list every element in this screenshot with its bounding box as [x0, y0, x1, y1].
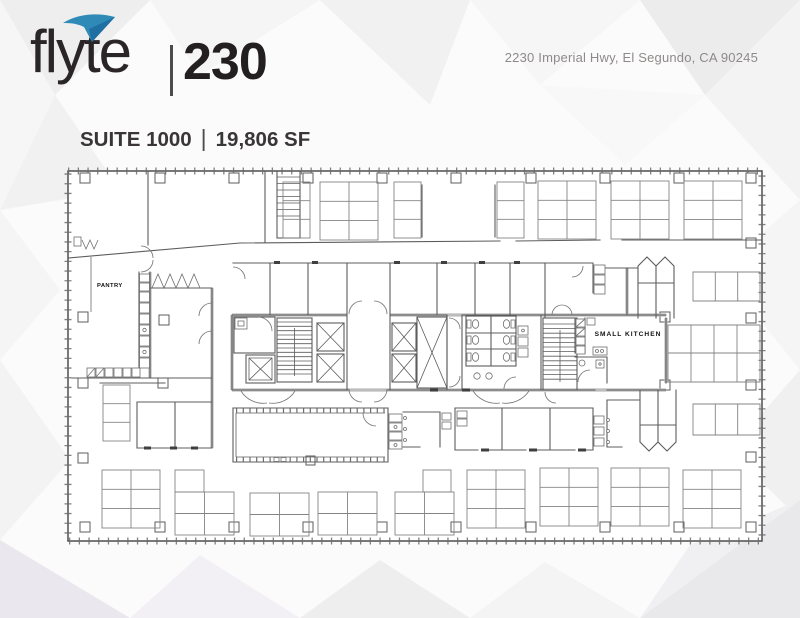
small-kitchen-label: SMALL KITCHEN	[595, 331, 662, 338]
logo-number: 230	[183, 36, 267, 88]
building-outline	[68, 171, 762, 541]
suite-separator: |	[201, 125, 207, 152]
flyer-graphic: PANTRY SMALL KITCHEN	[0, 0, 800, 618]
suite-name: SUITE 1000	[80, 128, 192, 152]
janitor-closet	[518, 326, 528, 357]
flyer-page: PANTRY SMALL KITCHEN flyte 230 2230 Impe…	[0, 0, 800, 618]
pantry-label: PANTRY	[97, 283, 123, 289]
suite-title: SUITE 1000 | 19,806 SF	[80, 128, 310, 152]
logo-divider	[170, 45, 173, 96]
suite-area: 19,806 SF	[216, 128, 311, 152]
address-text: 2230 Imperial Hwy, El Segundo, CA 90245	[505, 50, 758, 65]
floor-plan: PANTRY SMALL KITCHEN	[68, 171, 762, 541]
swoosh-shape	[63, 14, 115, 42]
logo-swoosh-icon	[62, 12, 116, 42]
